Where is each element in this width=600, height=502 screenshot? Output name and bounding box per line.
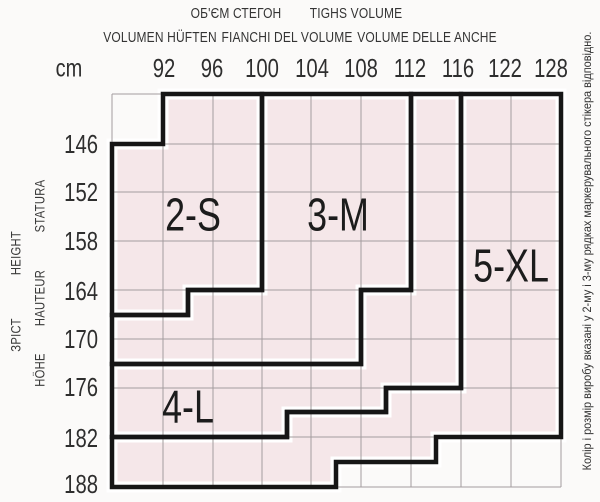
height-value-188: 188 bbox=[64, 470, 98, 499]
height-value-182: 182 bbox=[64, 424, 98, 453]
size-label-5-xl: 5-XL bbox=[473, 240, 549, 291]
hips-value-96: 96 bbox=[201, 54, 224, 83]
hips-title-uk: ОБ'ЄМ СТЕГОН bbox=[191, 5, 282, 22]
hips-value-100: 100 bbox=[245, 54, 279, 83]
hips-value-128: 128 bbox=[534, 54, 568, 83]
hips-title-en: TIGHS VOLUME bbox=[310, 5, 403, 22]
height-title-height: HEIGHT bbox=[8, 231, 23, 275]
height-value-164: 164 bbox=[64, 277, 98, 306]
hips-value-112: 112 bbox=[394, 54, 426, 83]
marking-sticker-note: Колір і розмір виробу вказані у 2-му і 3… bbox=[582, 32, 594, 471]
height-value-152: 152 bbox=[64, 178, 98, 207]
height-value-158: 158 bbox=[64, 227, 98, 256]
hips-value-104: 104 bbox=[295, 54, 329, 83]
height-value-146: 146 bbox=[64, 130, 98, 159]
hips-axis-values: 92 96 100 104 108 112 116 122 128 bbox=[153, 54, 568, 83]
height-value-170: 170 bbox=[64, 325, 98, 354]
size-label-3-m: 3-M bbox=[307, 189, 369, 240]
height-title-zrist: ЗРІСТ bbox=[8, 318, 23, 351]
unit-label: cm bbox=[56, 54, 83, 82]
height-title-statura: STATURA bbox=[32, 179, 47, 232]
size-label-2-s: 2-S bbox=[165, 189, 221, 240]
hips-value-116: 116 bbox=[442, 54, 474, 83]
hips-title-it-anche: VOLUME DELLE ANCHE bbox=[357, 29, 497, 46]
hips-value-108: 108 bbox=[344, 54, 378, 83]
height-title-hohe: HÖHE bbox=[32, 353, 47, 387]
height-title-hauteur: HAUTEUR bbox=[32, 270, 47, 326]
size-label-4-l: 4-L bbox=[162, 381, 214, 432]
size-chart-svg: 2-S 3-M 4-L 5-XL ОБ'ЄМ СТЕГОН TIGHS VOLU… bbox=[0, 0, 600, 502]
hips-title-de: VOLUMEN HÜFTEN bbox=[103, 29, 217, 46]
hips-value-92: 92 bbox=[153, 54, 176, 83]
hips-value-122: 122 bbox=[488, 54, 522, 83]
size-chart-page: 2-S 3-M 4-L 5-XL ОБ'ЄМ СТЕГОН TIGHS VOLU… bbox=[0, 0, 600, 502]
height-value-176: 176 bbox=[64, 373, 98, 402]
hips-title-it: FIANCHI DEL VOLUME bbox=[221, 29, 352, 46]
